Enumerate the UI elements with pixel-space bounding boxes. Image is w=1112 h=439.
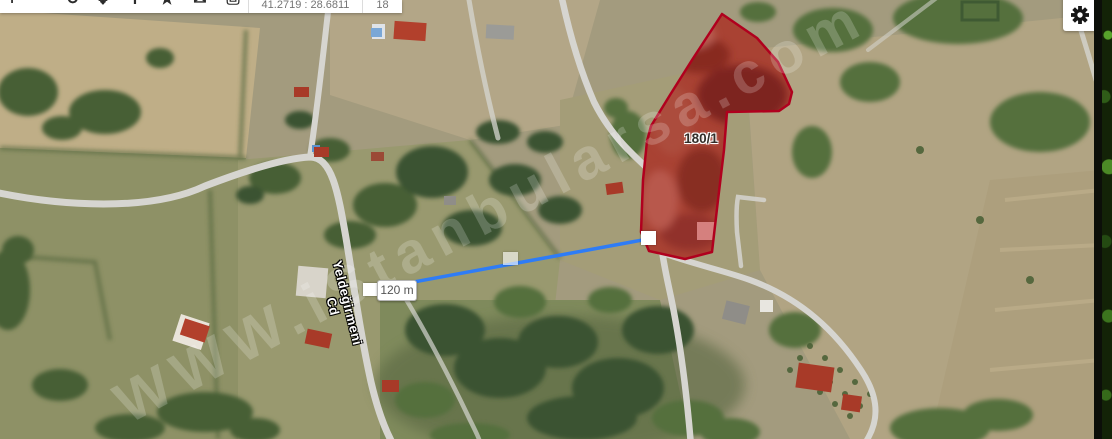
- refresh-button[interactable]: ↺: [62, 0, 84, 13]
- printer-icon: ⎙: [227, 0, 240, 8]
- pan-button[interactable]: ✥: [92, 0, 114, 13]
- measurement-mid-marker[interactable]: [503, 252, 518, 265]
- zoom-level-display: 18: [362, 0, 402, 13]
- coordinates-display: 41.2719 : 28.6811: [248, 0, 362, 13]
- page-edge-divider: [1094, 0, 1102, 439]
- measurement-start-marker[interactable]: [363, 283, 377, 296]
- zoom-in-button[interactable]: +: [1, 0, 23, 13]
- toolbar-buttons: + − ↺ ✥ i ★ ✉ ⎙: [0, 0, 248, 13]
- map-toolbar: + − ↺ ✥ i ★ ✉ ⎙ 41.2719 : 28.6811 18: [0, 0, 402, 13]
- print-button[interactable]: ⎙: [222, 0, 244, 13]
- favorite-button[interactable]: ★: [156, 0, 178, 13]
- info-button[interactable]: i: [124, 0, 146, 13]
- gear-icon: [1070, 5, 1090, 25]
- parcel-number-label: 180/1: [670, 131, 732, 146]
- envelope-icon: ✉: [193, 0, 206, 8]
- plus-icon: +: [7, 0, 16, 8]
- minus-icon: −: [37, 0, 46, 8]
- pan-icon: ✥: [96, 0, 109, 8]
- star-icon: ★: [160, 0, 174, 8]
- satellite-imagery: [0, 0, 1101, 439]
- map-application: WWW.iStanbularsa.com 120 m 180/1 Yeldeği…: [0, 0, 1112, 439]
- measurement-distance-label: 120 m: [377, 280, 417, 301]
- refresh-icon: ↺: [66, 0, 79, 8]
- info-icon: i: [133, 0, 137, 8]
- measurement-end-marker[interactable]: [641, 231, 656, 245]
- zoom-out-button[interactable]: −: [31, 0, 53, 13]
- settings-button[interactable]: [1063, 0, 1097, 31]
- map-viewport[interactable]: WWW.iStanbularsa.com 120 m 180/1 Yeldeği…: [0, 0, 1101, 439]
- page-background-strip: [1102, 0, 1112, 439]
- message-button[interactable]: ✉: [189, 0, 211, 13]
